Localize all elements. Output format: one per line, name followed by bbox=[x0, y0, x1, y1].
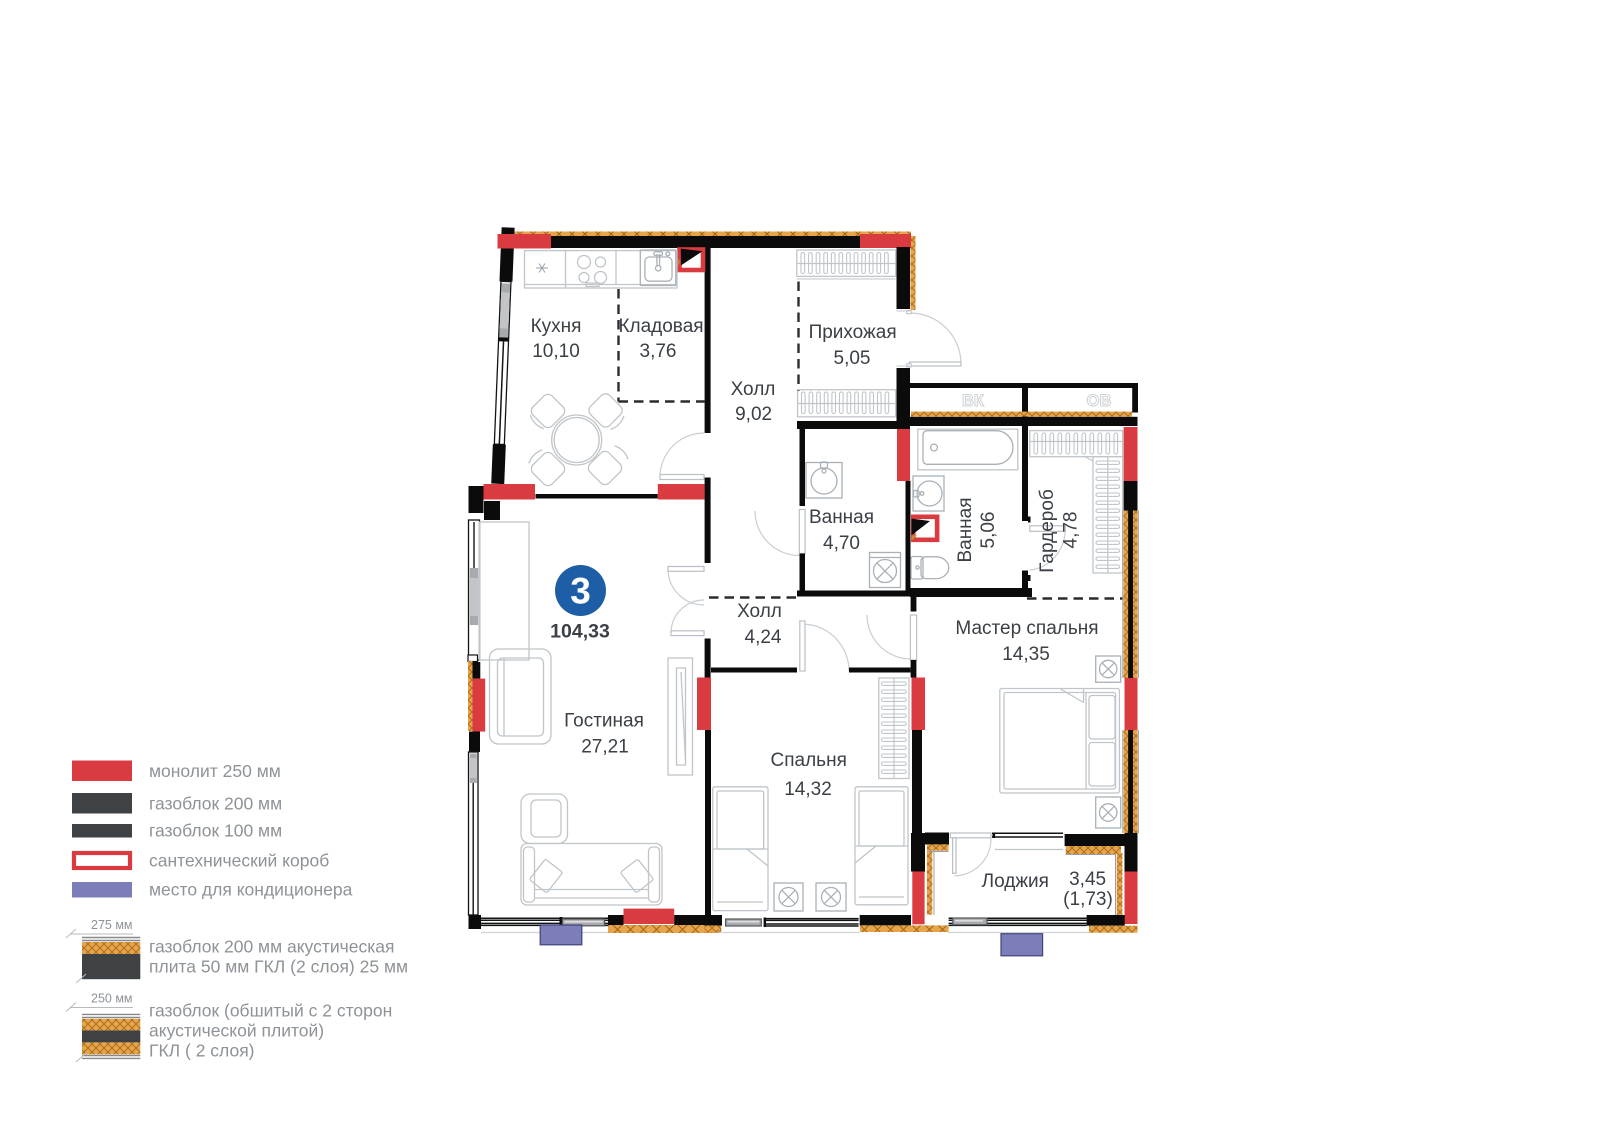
svg-text:4,78: 4,78 bbox=[1061, 512, 1082, 549]
svg-text:27,21: 27,21 bbox=[581, 737, 629, 758]
svg-text:плита 50 мм ГКЛ (2 слоя) 25 мм: плита 50 мм ГКЛ (2 слоя) 25 мм bbox=[149, 957, 408, 977]
svg-text:9,02: 9,02 bbox=[735, 404, 772, 425]
svg-text:Гостиная: Гостиная bbox=[564, 711, 644, 732]
svg-text:Ванная: Ванная bbox=[955, 497, 976, 562]
svg-text:4,24: 4,24 bbox=[745, 627, 782, 648]
svg-text:сантехнический короб: сантехнический короб bbox=[149, 851, 329, 871]
svg-text:монолит 250 мм: монолит 250 мм bbox=[149, 761, 281, 781]
svg-text:Гардероб: Гардероб bbox=[1037, 489, 1058, 573]
svg-text:ВК: ВК bbox=[962, 392, 985, 410]
svg-text:3,76: 3,76 bbox=[640, 341, 677, 362]
svg-text:Холл: Холл bbox=[737, 601, 782, 622]
svg-text:5,06: 5,06 bbox=[978, 512, 999, 549]
svg-text:4,70: 4,70 bbox=[823, 533, 860, 554]
svg-text:(1,73): (1,73) bbox=[1063, 889, 1113, 910]
svg-text:ОВ: ОВ bbox=[1087, 392, 1112, 410]
svg-text:104,33: 104,33 bbox=[550, 621, 610, 643]
svg-text:250 мм: 250 мм bbox=[91, 992, 133, 1006]
svg-text:Лоджия: Лоджия bbox=[982, 871, 1049, 892]
svg-text:Кладовая: Кладовая bbox=[618, 316, 703, 337]
svg-text:Спальня: Спальня bbox=[771, 750, 847, 771]
svg-text:Мастер спальня: Мастер спальня bbox=[955, 618, 1098, 639]
svg-text:Прихожая: Прихожая bbox=[809, 322, 897, 343]
svg-text:газоблок (обшитый с 2 сторон: газоблок (обшитый с 2 сторон bbox=[149, 1001, 392, 1021]
svg-text:ГКЛ ( 2 слоя): ГКЛ ( 2 слоя) bbox=[149, 1041, 255, 1061]
svg-text:Ванная: Ванная bbox=[809, 507, 874, 528]
svg-text:газоблок 200 мм акустическая: газоблок 200 мм акустическая bbox=[149, 937, 395, 957]
svg-text:газоблок 100 мм: газоблок 100 мм bbox=[149, 821, 282, 841]
svg-text:Холл: Холл bbox=[731, 379, 776, 400]
svg-text:14,35: 14,35 bbox=[1002, 644, 1050, 665]
svg-text:3: 3 bbox=[570, 571, 591, 612]
svg-text:акустической плитой): акустической плитой) bbox=[149, 1021, 324, 1041]
svg-text:10,10: 10,10 bbox=[532, 341, 580, 362]
svg-text:5,05: 5,05 bbox=[834, 348, 871, 369]
svg-text:место для кондиционера: место для кондиционера bbox=[149, 880, 353, 900]
svg-text:275 мм: 275 мм bbox=[91, 918, 133, 932]
svg-text:3,45: 3,45 bbox=[1069, 869, 1106, 890]
svg-text:14,32: 14,32 bbox=[784, 779, 832, 800]
svg-text:газоблок 200 мм: газоблок 200 мм bbox=[149, 794, 282, 814]
svg-text:Кухня: Кухня bbox=[531, 316, 582, 337]
